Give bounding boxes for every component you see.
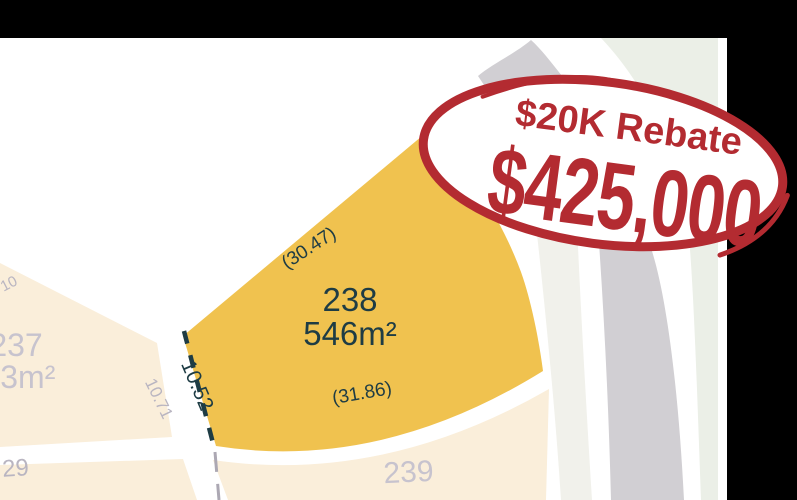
mask-band-top [0,0,797,38]
lot-237-area: 553m² [0,359,56,395]
lot-237-number: 237 [0,327,43,363]
lot-238-number: 238 [322,281,377,318]
lot-239-number: 239 [383,455,435,491]
lot-238-area: 546m² [303,315,397,352]
estate-lot-map: 237 553m² 10 10.71 238 546m² (30.47) (31… [0,0,797,500]
lot-29-number: 29 [1,454,30,483]
